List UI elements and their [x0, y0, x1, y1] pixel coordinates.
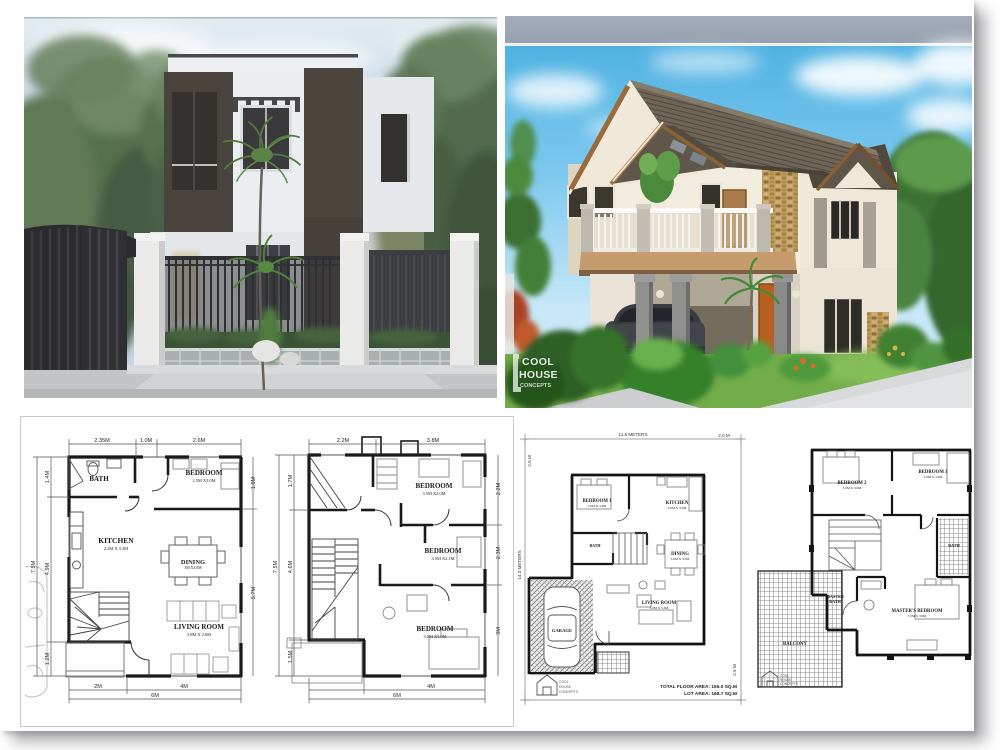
svg-text:3M X3.0M: 3M X3.0M [184, 566, 202, 570]
svg-text:BEDROOM: BEDROOM [425, 547, 462, 555]
svg-text:4.6M: 4.6M [288, 560, 294, 573]
svg-text:3.5M X 3.6M: 3.5M X 3.6M [908, 614, 927, 618]
svg-text:1.5M: 1.5M [288, 650, 294, 663]
svg-text:11.8 METERS: 11.8 METERS [618, 432, 647, 437]
svg-text:3.0M X 3.0M: 3.0M X 3.0M [843, 486, 862, 490]
svg-text:3.0M X3.0M: 3.0M X3.0M [423, 634, 446, 639]
svg-text:3M: 3M [496, 627, 502, 635]
svg-text:3.8M X 2.6M: 3.8M X 2.6M [187, 632, 211, 637]
svg-text:LIVING ROOM: LIVING ROOM [174, 623, 224, 631]
svg-text:BEDROOM: BEDROOM [416, 482, 453, 490]
svg-text:6M: 6M [393, 693, 401, 699]
svg-text:6M: 6M [151, 693, 159, 699]
svg-text:3.0M X 3.0M: 3.0M X 3.0M [588, 504, 607, 508]
svg-text:BALCONY: BALCONY [783, 642, 808, 647]
svg-text:1.2M: 1.2M [45, 652, 51, 665]
svg-text:GARAGE: GARAGE [552, 628, 572, 633]
svg-text:2.0 M: 2.0 M [718, 433, 730, 438]
svg-text:KITCHEN: KITCHEN [98, 536, 134, 545]
svg-text:1.4M: 1.4M [45, 470, 51, 483]
svg-text:HOUSE: HOUSE [559, 685, 572, 689]
svg-text:7.5M: 7.5M [273, 560, 279, 573]
svg-text:TOTAL FLOOR AREA: 166.0 SQ.M: TOTAL FLOOR AREA: 166.0 SQ.M [660, 684, 737, 690]
svg-text:BEDROOM: BEDROOM [186, 469, 223, 477]
svg-text:3.5M X2.1M: 3.5M X2.1M [431, 556, 454, 561]
svg-text:1.7M: 1.7M [288, 474, 294, 487]
svg-text:3.0M X 3.3M: 3.0M X 3.3M [671, 557, 690, 561]
svg-text:3.5M X2.0M: 3.5M X2.0M [422, 491, 445, 496]
svg-text:BATH: BATH [829, 599, 841, 604]
svg-text:3.0M X 3.3M: 3.0M X 3.3M [668, 506, 687, 510]
svg-text:BATH: BATH [89, 475, 109, 483]
svg-text:COOL: COOL [559, 680, 569, 684]
svg-text:CONCEPTS: CONCEPTS [520, 383, 551, 389]
svg-text:1.8M: 1.8M [251, 476, 257, 489]
svg-text:BATH: BATH [589, 543, 601, 548]
svg-text:BATH: BATH [948, 543, 960, 548]
svg-text:1.0M: 1.0M [140, 438, 153, 444]
svg-text:2.3M: 2.3M [496, 546, 502, 559]
svg-text:HOUSE: HOUSE [519, 369, 558, 381]
svg-text:14.3 METERS: 14.3 METERS [517, 550, 522, 579]
svg-text:3.0M X 3.3M: 3.0M X 3.3M [650, 606, 669, 610]
svg-text:3.0M X 3.0M: 3.0M X 3.0M [924, 475, 943, 479]
svg-text:4M: 4M [427, 684, 435, 690]
svg-text:2M: 2M [94, 684, 102, 690]
svg-text:2.5M X3.0M: 2.5M X3.0M [192, 478, 215, 483]
svg-text:CONCEPTS: CONCEPTS [780, 682, 798, 686]
svg-text:7.5M: 7.5M [31, 560, 37, 573]
svg-text:2.5 M: 2.5 M [527, 455, 532, 467]
svg-text:LOT AREA: 168.7 SQ.M: LOT AREA: 168.7 SQ.M [684, 691, 737, 697]
svg-text:COOL: COOL [522, 356, 554, 368]
svg-text:3.8M: 3.8M [427, 438, 440, 444]
svg-text:2.2M: 2.2M [496, 482, 502, 495]
svg-text:5.7M: 5.7M [251, 586, 257, 599]
svg-text:2.35M: 2.35M [94, 438, 110, 444]
svg-text:4.9M: 4.9M [45, 562, 51, 575]
svg-text:2.5 M: 2.5 M [732, 664, 737, 676]
svg-text:DINING: DINING [181, 559, 205, 566]
svg-text:CONCEPTS: CONCEPTS [559, 690, 579, 694]
svg-text:2.2M: 2.2M [337, 438, 350, 444]
svg-text:4M: 4M [180, 684, 188, 690]
svg-text:BEDROOM: BEDROOM [417, 625, 454, 633]
svg-text:2.6M: 2.6M [193, 438, 206, 444]
svg-text:2.2M X 3.3M: 2.2M X 3.3M [104, 546, 128, 551]
